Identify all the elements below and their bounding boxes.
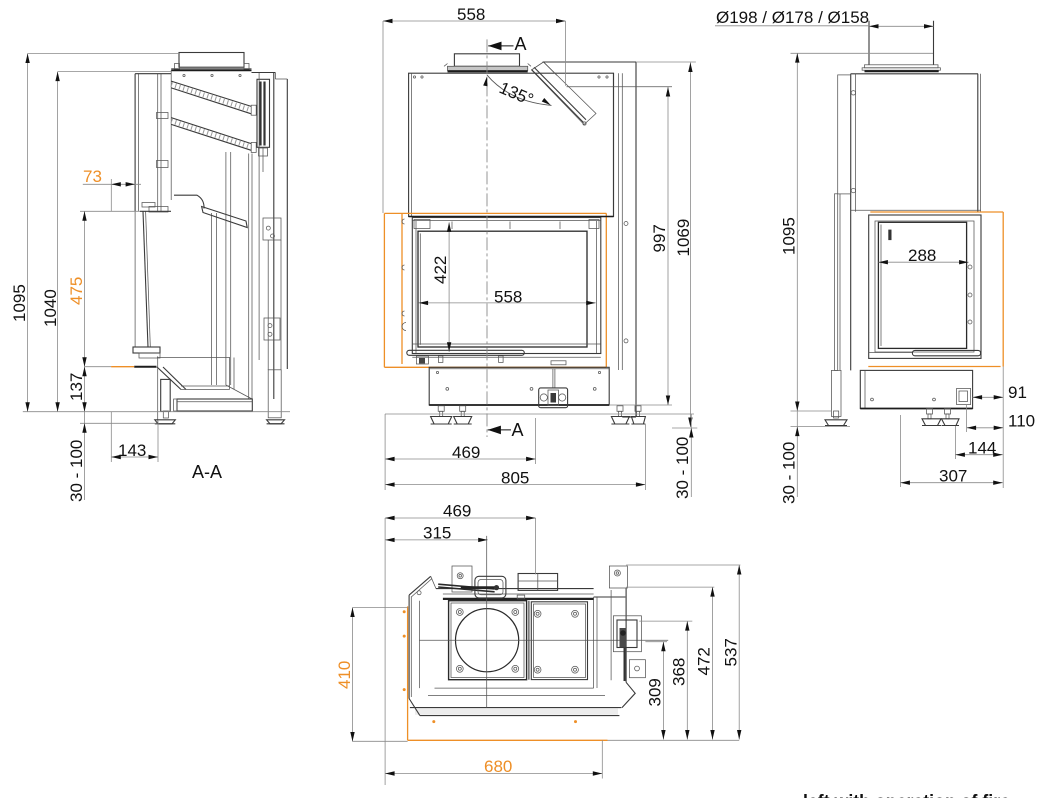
svg-text:288: 288	[908, 246, 936, 265]
svg-text:143: 143	[118, 441, 146, 460]
svg-text:422: 422	[431, 256, 450, 284]
svg-text:30 - 100: 30 - 100	[780, 442, 799, 504]
svg-text:315: 315	[423, 523, 451, 542]
svg-text:1095: 1095	[10, 284, 29, 322]
svg-text:368: 368	[670, 658, 689, 686]
svg-text:137: 137	[67, 373, 86, 401]
svg-text:805: 805	[501, 469, 529, 488]
svg-text:410: 410	[335, 661, 354, 689]
svg-text:30 - 100: 30 - 100	[67, 440, 86, 502]
svg-text:Ø198 / Ø178 / Ø158: Ø198 / Ø178 / Ø158	[716, 8, 869, 27]
svg-text:A-A: A-A	[192, 462, 222, 482]
svg-text:left with operation of fire: left with operation of fire	[803, 792, 1010, 798]
svg-text:469: 469	[443, 502, 471, 521]
svg-text:469: 469	[452, 443, 480, 462]
svg-text:537: 537	[722, 638, 741, 666]
svg-text:A: A	[515, 34, 527, 54]
svg-text:A: A	[512, 420, 524, 440]
svg-text:1095: 1095	[780, 217, 799, 255]
svg-text:91: 91	[1008, 383, 1027, 402]
svg-text:73: 73	[83, 167, 102, 186]
svg-text:30 - 100: 30 - 100	[673, 437, 692, 499]
svg-text:680: 680	[484, 757, 512, 776]
svg-text:309: 309	[646, 678, 665, 706]
svg-text:144: 144	[968, 438, 996, 457]
svg-text:475: 475	[67, 277, 86, 305]
svg-text:1069: 1069	[674, 219, 693, 257]
svg-text:307: 307	[939, 466, 967, 485]
svg-text:472: 472	[695, 647, 714, 675]
svg-text:997: 997	[650, 224, 669, 252]
svg-text:558: 558	[457, 5, 485, 24]
svg-text:110: 110	[1008, 411, 1035, 430]
svg-text:1040: 1040	[41, 289, 60, 327]
svg-text:558: 558	[494, 287, 522, 306]
